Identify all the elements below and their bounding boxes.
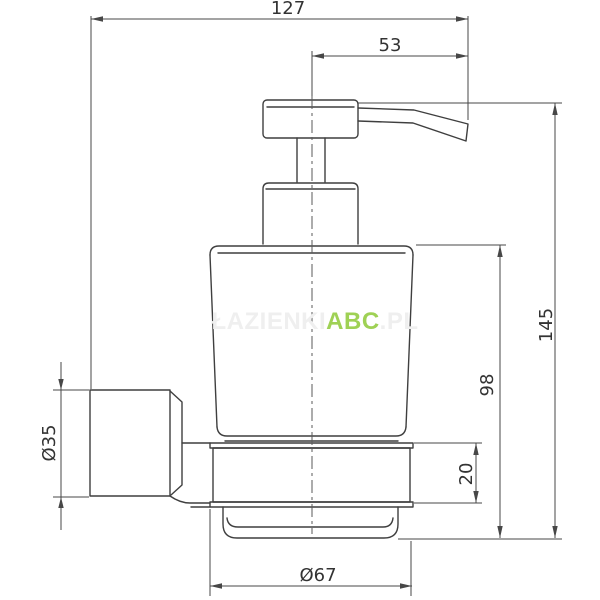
dim-35-arrow-bottom <box>58 497 63 508</box>
glass-bottom-cup <box>223 507 398 538</box>
dim-145-label: 145 <box>536 308 557 342</box>
dim-145-arrow-bottom <box>552 526 557 538</box>
wall-bracket <box>90 390 170 496</box>
bottle-side-left <box>210 255 217 427</box>
dim-20-label: 20 <box>456 463 477 486</box>
watermark-brand: ABC <box>326 308 380 335</box>
dim-35-arrow-top <box>58 379 63 390</box>
dim-53-arrow-right <box>456 53 468 58</box>
dimension-bottle-height: 98 <box>416 245 506 538</box>
dimension-holder-ring-diameter: Ø67 <box>210 509 412 596</box>
dim-53-label: 53 <box>379 35 402 56</box>
technical-drawing: 127 53 145 98 <box>0 0 600 600</box>
dim-53-arrow-left <box>312 53 324 58</box>
dim-20-arrow-top <box>473 443 478 455</box>
wall-bracket-chamfer <box>170 391 182 495</box>
dim-127-arrow-right <box>456 16 468 21</box>
dimension-bracket-diameter: Ø35 <box>39 362 89 530</box>
pump-head <box>263 100 358 138</box>
bracket-arm-bottom <box>170 496 210 507</box>
dim-98-label: 98 <box>477 374 498 397</box>
drawing-canvas: 127 53 145 98 <box>0 0 600 600</box>
dim-35-label: Ø35 <box>39 424 60 461</box>
watermark-suffix: .PL <box>380 308 419 335</box>
dim-67-arrow-left <box>210 583 222 588</box>
dim-67-label: Ø67 <box>299 565 336 586</box>
pump-collar <box>263 183 358 244</box>
dim-145-arrow-top <box>552 103 557 115</box>
dim-98-arrow-top <box>497 245 502 257</box>
dim-98-arrow-bottom <box>497 526 502 538</box>
dim-127-label: 127 <box>271 0 305 19</box>
glass-bottom-inner-line <box>227 518 393 527</box>
pump-stem <box>297 138 325 182</box>
watermark-prefix: ŁAZIENKI <box>211 308 326 335</box>
watermark: ŁAZIENKIABC.PL <box>211 308 418 336</box>
bottle-side-right <box>406 255 413 427</box>
dim-67-arrow-right <box>400 583 412 588</box>
dimension-holder-ring-height: 20 <box>414 443 482 503</box>
dim-127-arrow-left <box>91 16 103 21</box>
dimension-spout-reach: 53 <box>312 35 468 96</box>
pump-spout <box>358 108 468 141</box>
dim-20-arrow-bottom <box>473 491 478 503</box>
